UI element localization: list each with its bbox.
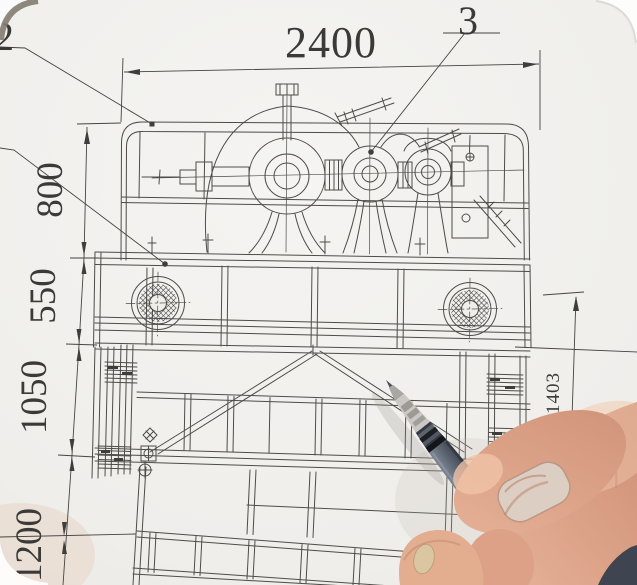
photo-of-blueprint: 2400 800 550 1050 1200 1403 2 3 <box>0 0 637 585</box>
blueprint-photo: 2400 800 550 1050 1200 1403 2 3 <box>0 0 637 585</box>
dim-left-1050: 1050 <box>14 360 55 434</box>
callout-3-label: 3 <box>458 0 478 43</box>
dim-top-label: 2400 <box>285 18 377 67</box>
dim-left-550: 550 <box>23 268 64 324</box>
dim-left-800: 800 <box>30 162 71 218</box>
dim-right-1403: 1403 <box>543 372 564 414</box>
